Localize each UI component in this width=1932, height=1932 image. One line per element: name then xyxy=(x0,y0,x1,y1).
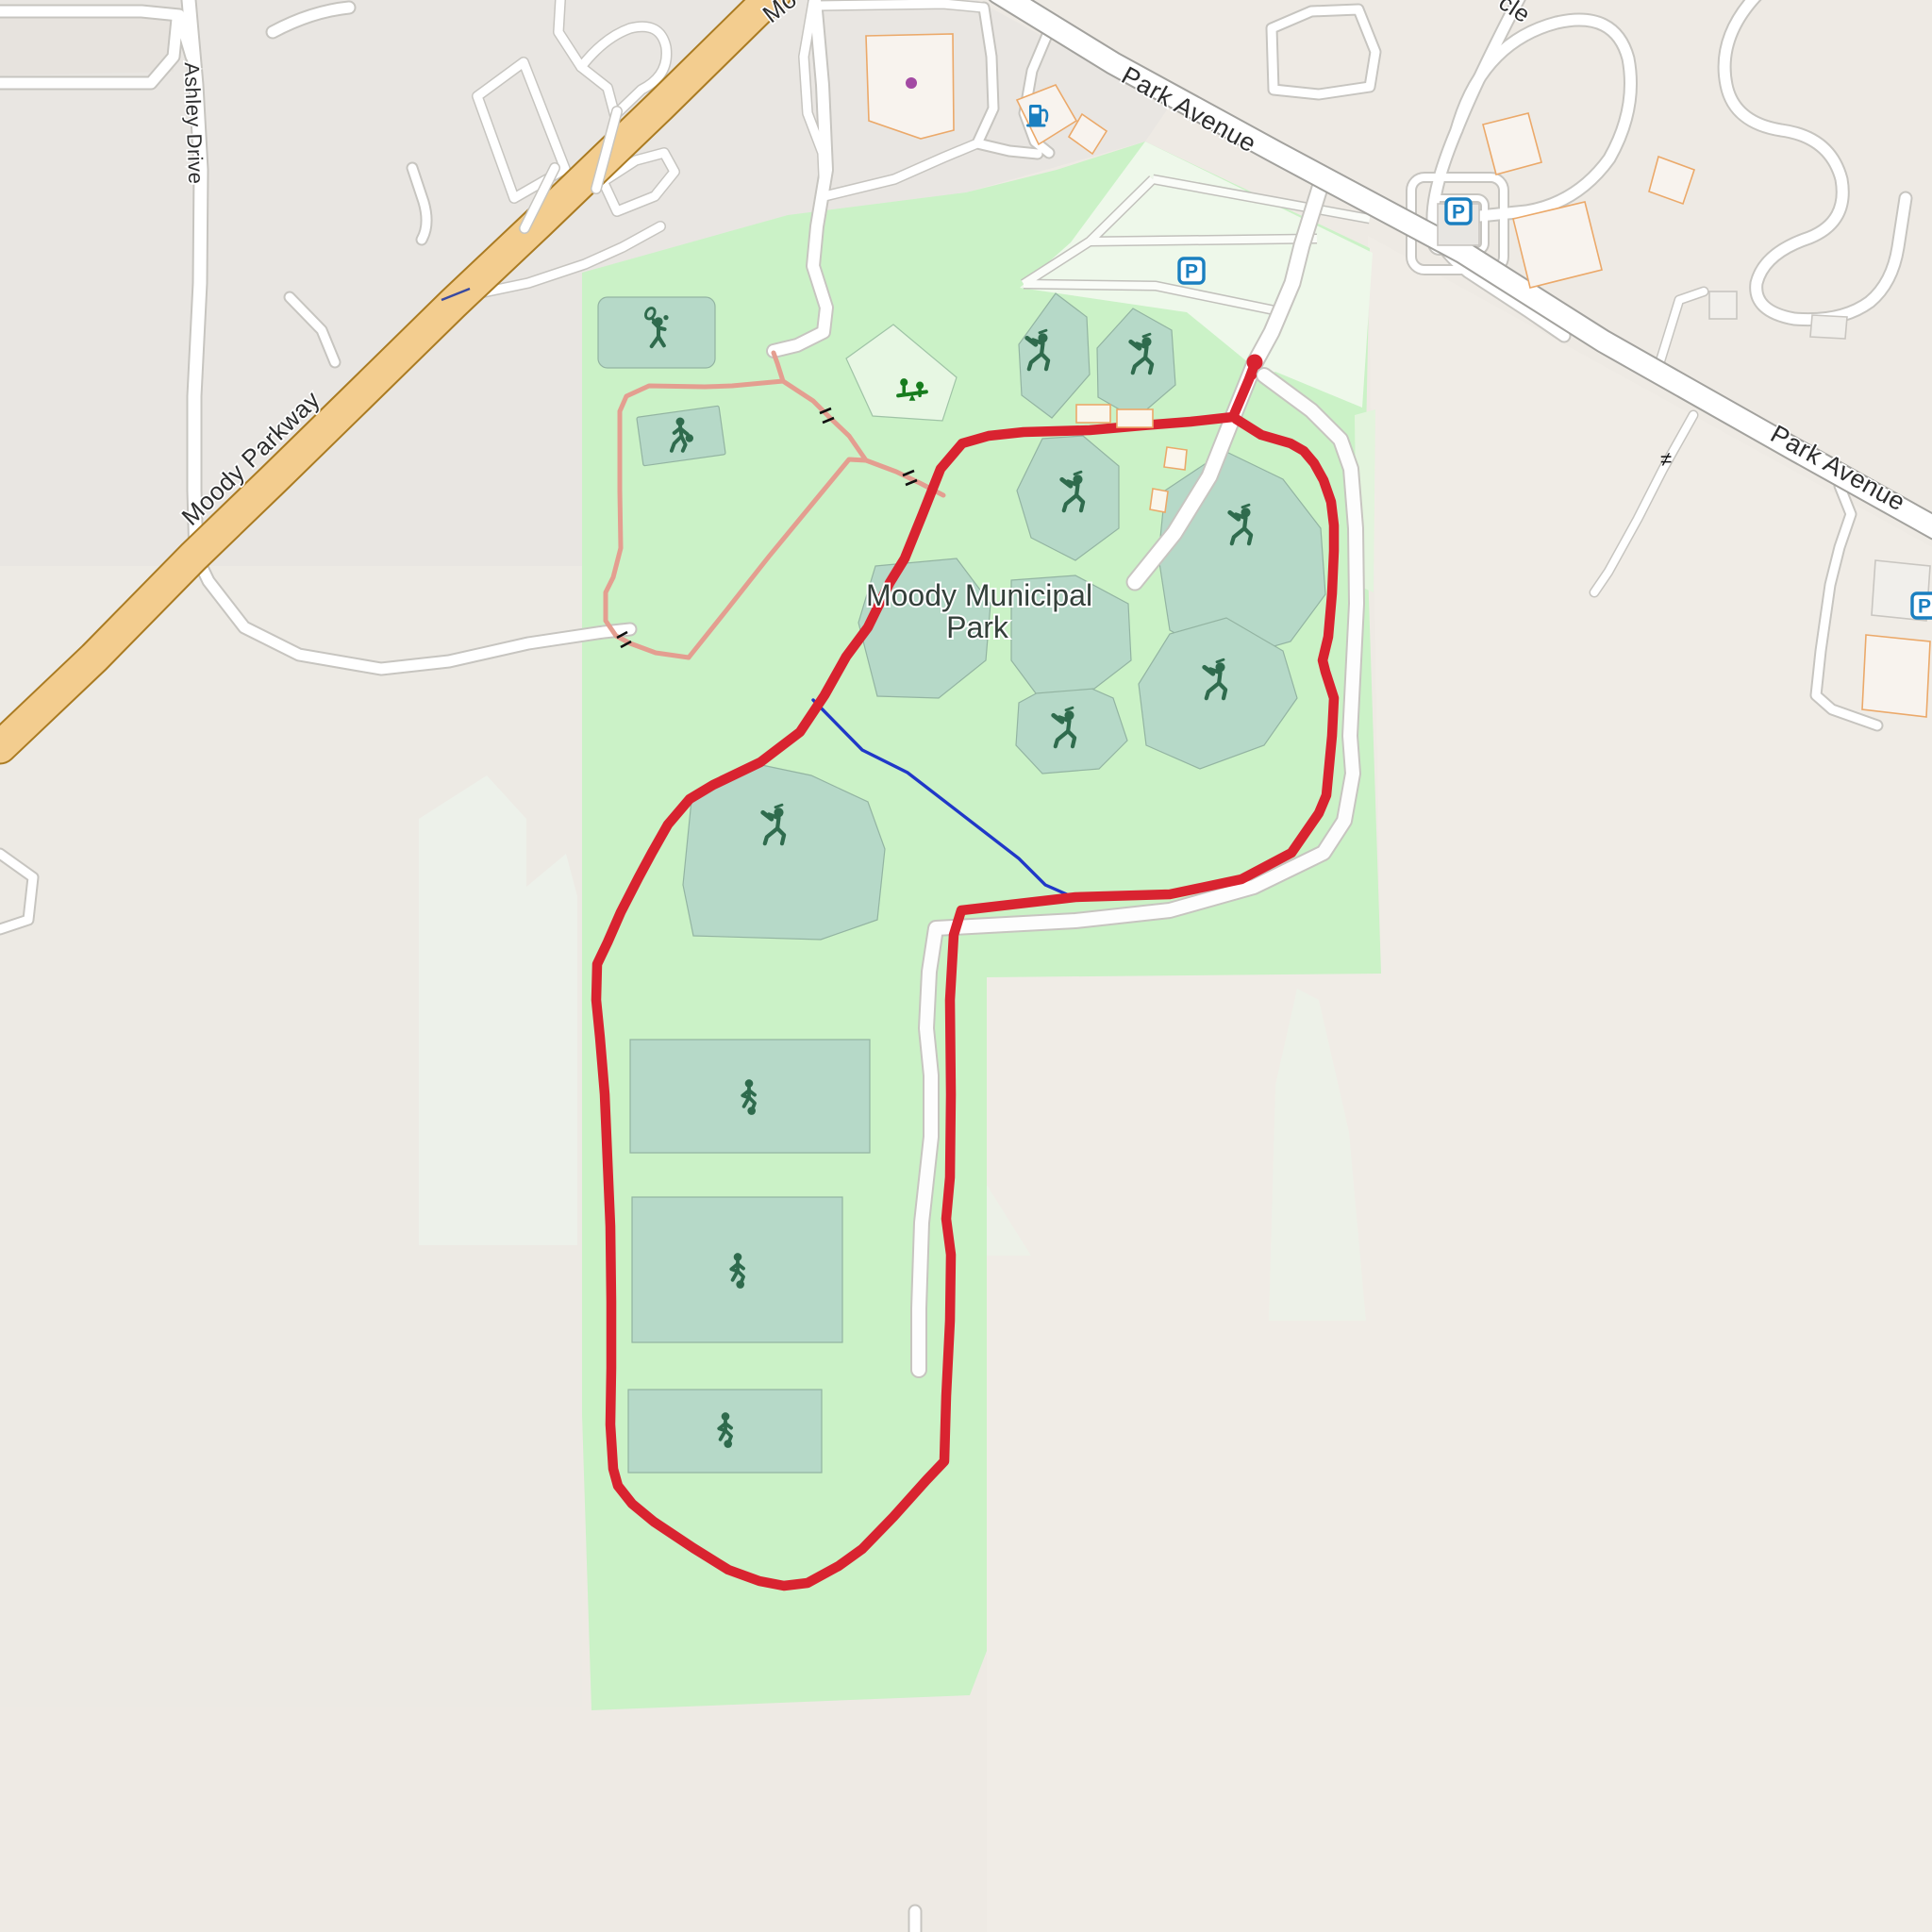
svg-text:Park: Park xyxy=(946,610,1009,644)
svg-text:Moody Municipal: Moody Municipal xyxy=(866,578,1092,612)
svg-text:≠: ≠ xyxy=(1660,447,1672,471)
svg-text:Ashley Drive: Ashley Drive xyxy=(180,62,208,185)
